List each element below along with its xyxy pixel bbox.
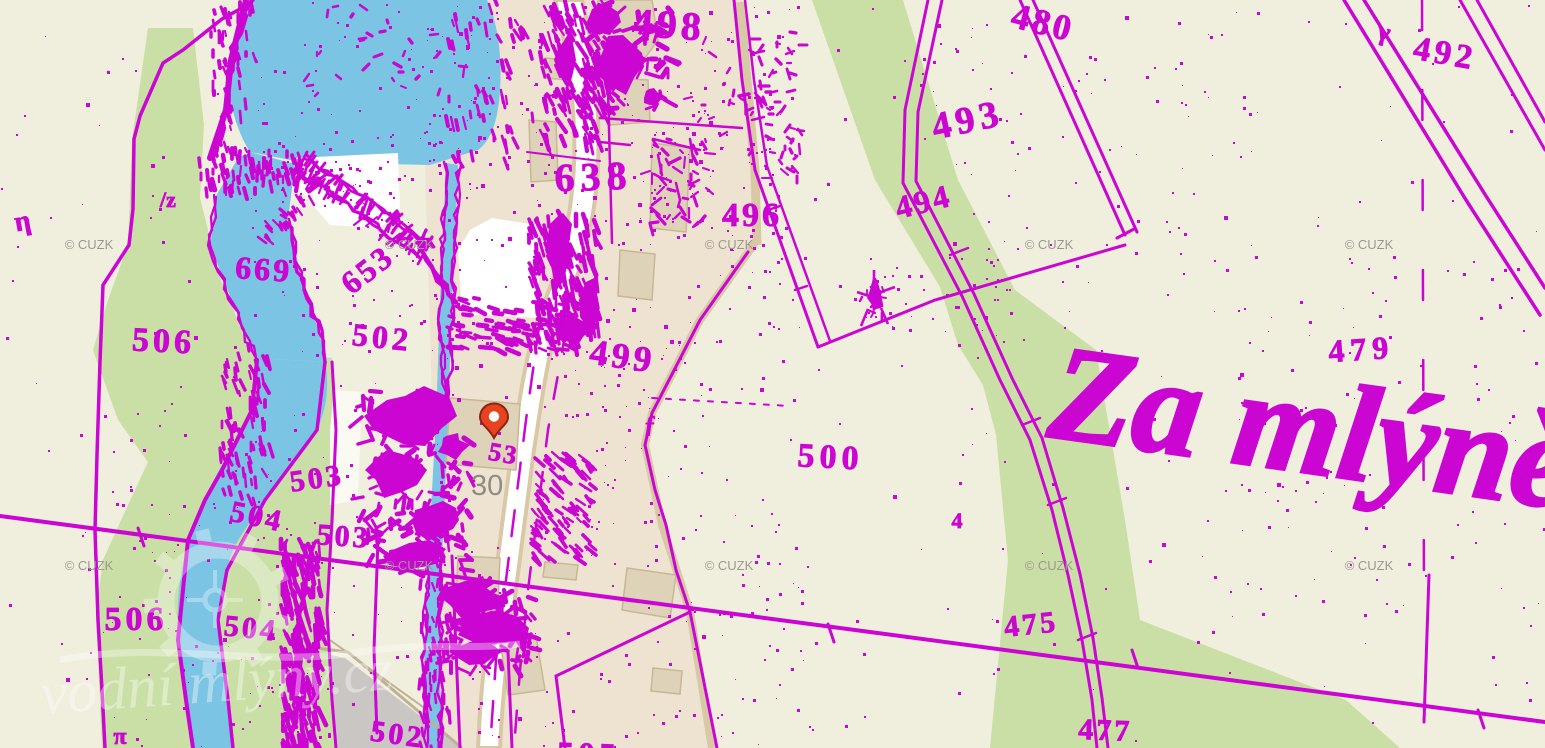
svg-text:ƒ: ƒ (644, 412, 656, 438)
svg-text:© CUZK: © CUZK (385, 237, 434, 252)
svg-text:© CUZK: © CUZK (1025, 237, 1074, 252)
svg-text:© CUZK: © CUZK (705, 237, 754, 252)
svg-text:© CUZK: © CUZK (1345, 237, 1394, 252)
svg-text:503: 503 (316, 518, 372, 555)
svg-text:© CUZK: © CUZK (65, 237, 114, 252)
svg-text:475: 475 (1002, 605, 1059, 643)
svg-text:502: 502 (350, 316, 413, 358)
svg-text:ß: ß (384, 401, 400, 428)
svg-text:53: 53 (486, 437, 521, 471)
svg-text:© CUZK: © CUZK (1025, 558, 1074, 573)
svg-text:π: π (113, 724, 126, 748)
svg-text:669: 669 (234, 249, 293, 289)
svg-text:506: 506 (131, 321, 196, 361)
svg-text:477: 477 (1078, 713, 1133, 748)
svg-text:© CUZK: © CUZK (705, 558, 754, 573)
svg-text:500: 500 (797, 437, 865, 477)
svg-text:505: 505 (556, 736, 620, 748)
svg-text:4: 4 (952, 508, 963, 533)
svg-text:© CUZK: © CUZK (1345, 558, 1394, 573)
svg-text:498: 498 (631, 0, 706, 49)
svg-text:© CUZK: © CUZK (385, 558, 434, 573)
svg-text:30: 30 (471, 470, 503, 502)
svg-text:© CUZK: © CUZK (65, 558, 114, 573)
